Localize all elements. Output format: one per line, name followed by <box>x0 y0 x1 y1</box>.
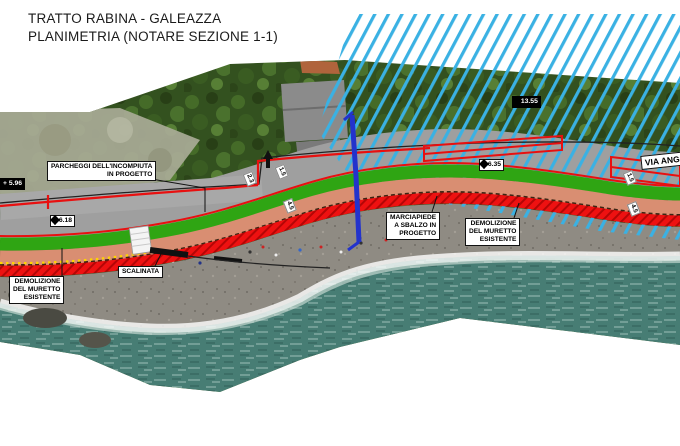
annotation-text: PROGETTO <box>390 230 436 238</box>
elevation-value: + 5.96 <box>0 178 25 190</box>
planimetry-drawing: TRATTO RABINA - GALEAZZA PLANIMETRIA (NO… <box>0 0 680 446</box>
drawing-title: TRATTO RABINA - GALEAZZA PLANIMETRIA (NO… <box>28 10 278 45</box>
annotation-text: DEL MURETTO <box>469 228 516 236</box>
elevation-marker-left-bar: + 5.96 <box>0 178 25 190</box>
annotation-text: ESISTENTE <box>13 294 60 302</box>
annotation-text: DEMOLIZIONE <box>469 220 516 228</box>
annotation-scalinata: SCALINATA <box>118 266 163 278</box>
title-line-1: TRATTO RABINA - GALEAZZA <box>28 10 278 28</box>
elevation-marker-635: + 6.35 <box>479 159 504 171</box>
survey-diamond-icon <box>50 215 60 225</box>
building-roof-orange <box>300 60 340 74</box>
annotation-demolizione-right: DEMOLIZIONE DEL MURETTO ESISTENTE <box>465 218 520 246</box>
annotation-text: DEMOLIZIONE <box>13 278 60 286</box>
stairs-shape <box>129 226 151 254</box>
elevation-marker-618: + 6.18 <box>50 215 75 227</box>
survey-diamond-icon <box>512 96 522 106</box>
annotation-text: PARCHEGGI DELL'INCOMPIUTA <box>51 163 152 171</box>
title-line-2: PLANIMETRIA (NOTARE SEZIONE 1-1) <box>28 28 278 46</box>
annotation-text: IN PROGETTO <box>51 171 152 179</box>
annotation-text: A SBALZO IN <box>390 222 436 230</box>
annotation-text: MARCIAPIEDE <box>390 214 436 222</box>
annotation-text: DEL MURETTO <box>13 286 60 294</box>
annotation-text: SCALINATA <box>122 268 159 276</box>
annotation-marciapiede: MARCIAPIEDE A SBALZO IN PROGETTO <box>386 212 440 240</box>
survey-diamond-icon <box>479 159 489 169</box>
annotation-demolizione-left: DEMOLIZIONE DEL MURETTO ESISTENTE <box>9 276 64 304</box>
aerial-photo-and-overlays <box>0 0 680 446</box>
annotation-parcheggi: PARCHEGGI DELL'INCOMPIUTA IN PROGETTO <box>47 161 156 181</box>
elevation-marker-1355: + 13.55 <box>512 96 541 108</box>
annotation-text: ESISTENTE <box>469 236 516 244</box>
